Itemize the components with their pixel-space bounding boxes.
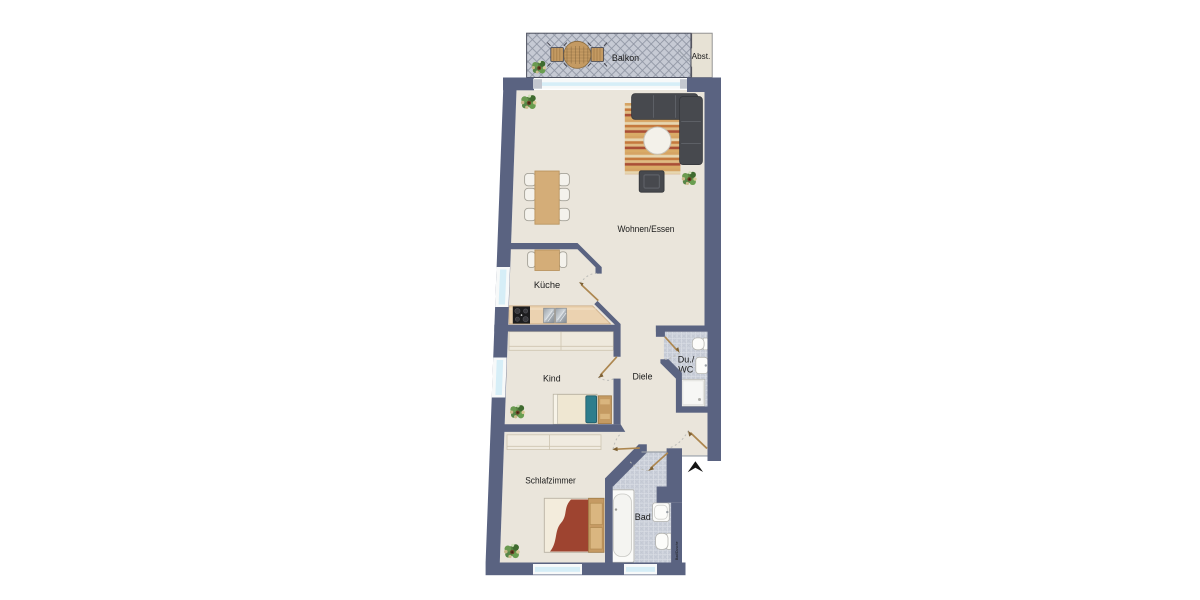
svg-text:Du./: Du./ <box>678 354 695 364</box>
svg-text:Abst.: Abst. <box>692 52 711 61</box>
svg-text:Bad/Dusche: Bad/Dusche <box>675 541 679 560</box>
svg-text:Balkon: Balkon <box>612 53 639 63</box>
svg-text:Kind: Kind <box>543 373 561 383</box>
svg-text:Bad: Bad <box>635 512 651 522</box>
svg-text:Küche: Küche <box>534 280 560 290</box>
svg-text:Wohnen/Essen: Wohnen/Essen <box>618 223 675 234</box>
svg-text:Diele: Diele <box>633 371 653 381</box>
svg-text:Schlafzimmer: Schlafzimmer <box>525 475 576 486</box>
